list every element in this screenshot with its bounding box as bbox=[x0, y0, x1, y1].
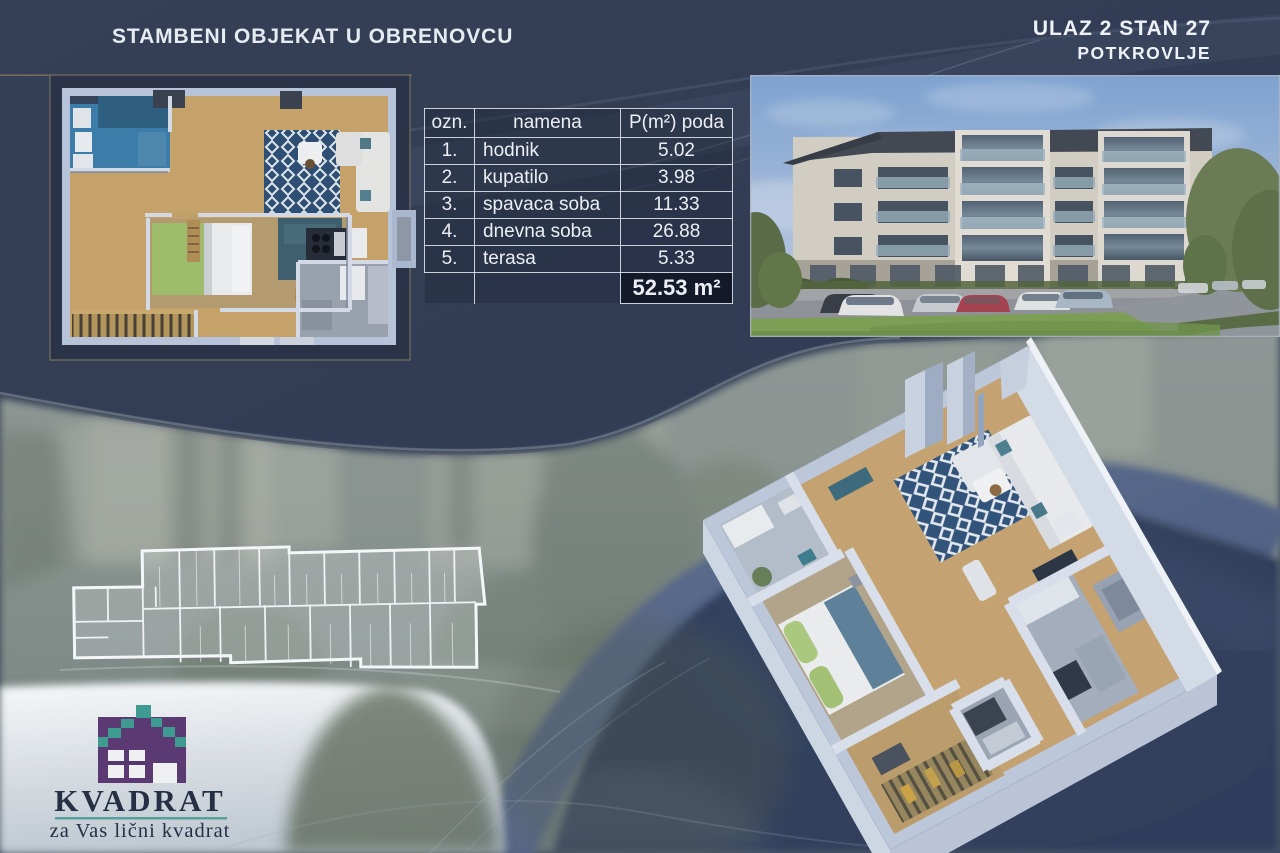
svg-text:KVADRAT: KVADRAT bbox=[54, 783, 225, 818]
svg-text:za Vas lični kvadrat: za Vas lični kvadrat bbox=[50, 820, 231, 842]
